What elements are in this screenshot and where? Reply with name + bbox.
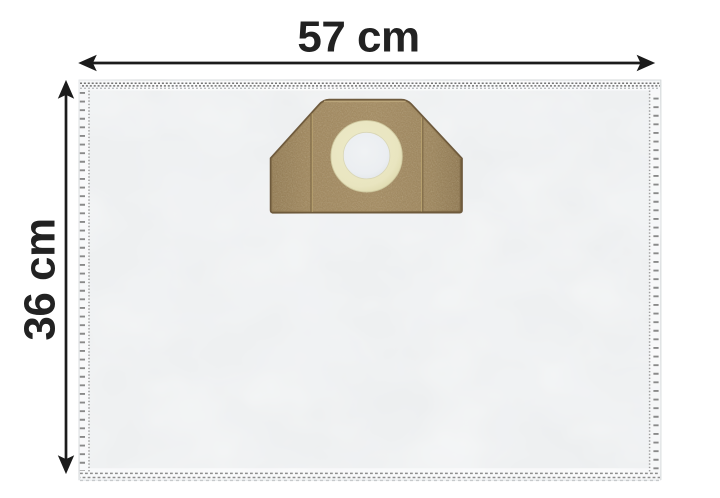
- svg-text:57 cm: 57 cm: [297, 13, 419, 62]
- svg-text:36 cm: 36 cm: [16, 218, 65, 340]
